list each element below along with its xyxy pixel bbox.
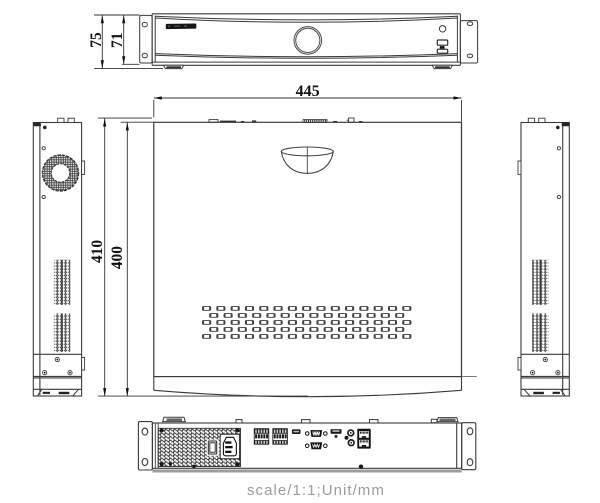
svg-text:410: 410 bbox=[89, 240, 106, 264]
svg-text:71: 71 bbox=[109, 33, 126, 49]
svg-text:445: 445 bbox=[296, 83, 320, 100]
svg-text:75: 75 bbox=[88, 32, 105, 48]
svg-text:scale/1:1;Unit/mm: scale/1:1;Unit/mm bbox=[247, 482, 385, 499]
svg-text:400: 400 bbox=[109, 246, 126, 270]
